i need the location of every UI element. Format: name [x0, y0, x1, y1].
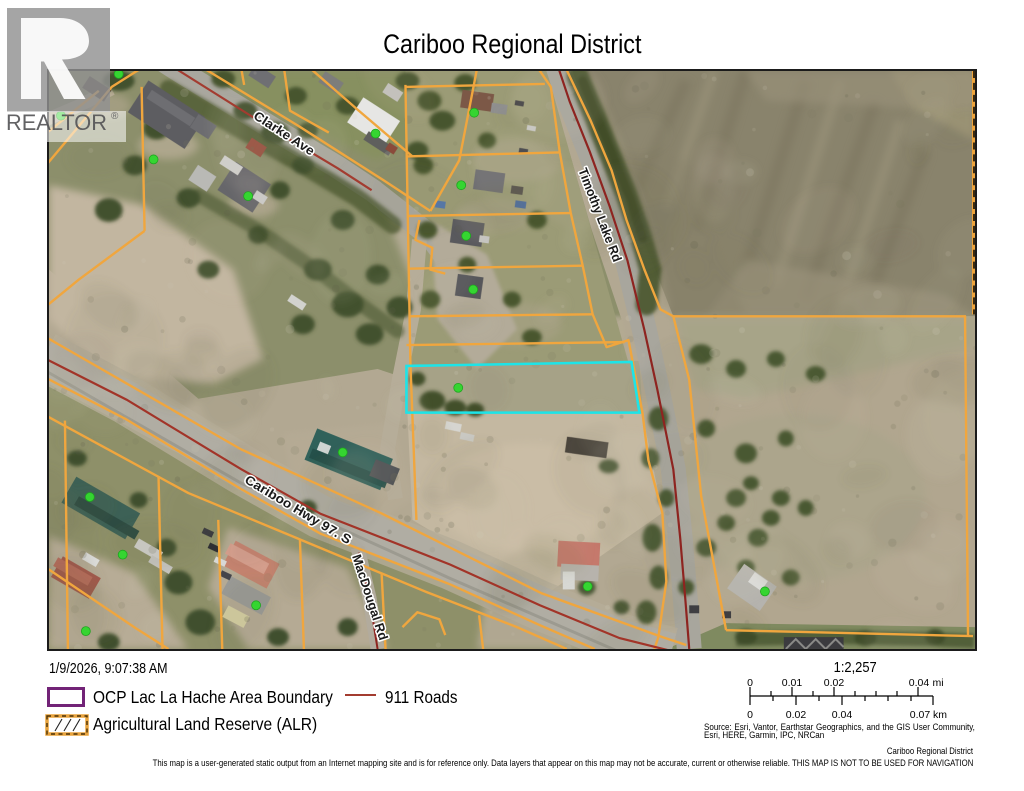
svg-text:0: 0: [747, 709, 753, 720]
svg-text:®: ®: [111, 111, 119, 122]
svg-text:0.04: 0.04: [909, 677, 930, 689]
svg-text:0.04: 0.04: [832, 709, 853, 720]
svg-text:0.02: 0.02: [786, 709, 807, 720]
svg-text:0.07: 0.07: [910, 709, 931, 720]
svg-text:mi: mi: [932, 677, 943, 689]
svg-text:km: km: [933, 709, 947, 720]
svg-text:REALTOR: REALTOR: [6, 110, 107, 135]
